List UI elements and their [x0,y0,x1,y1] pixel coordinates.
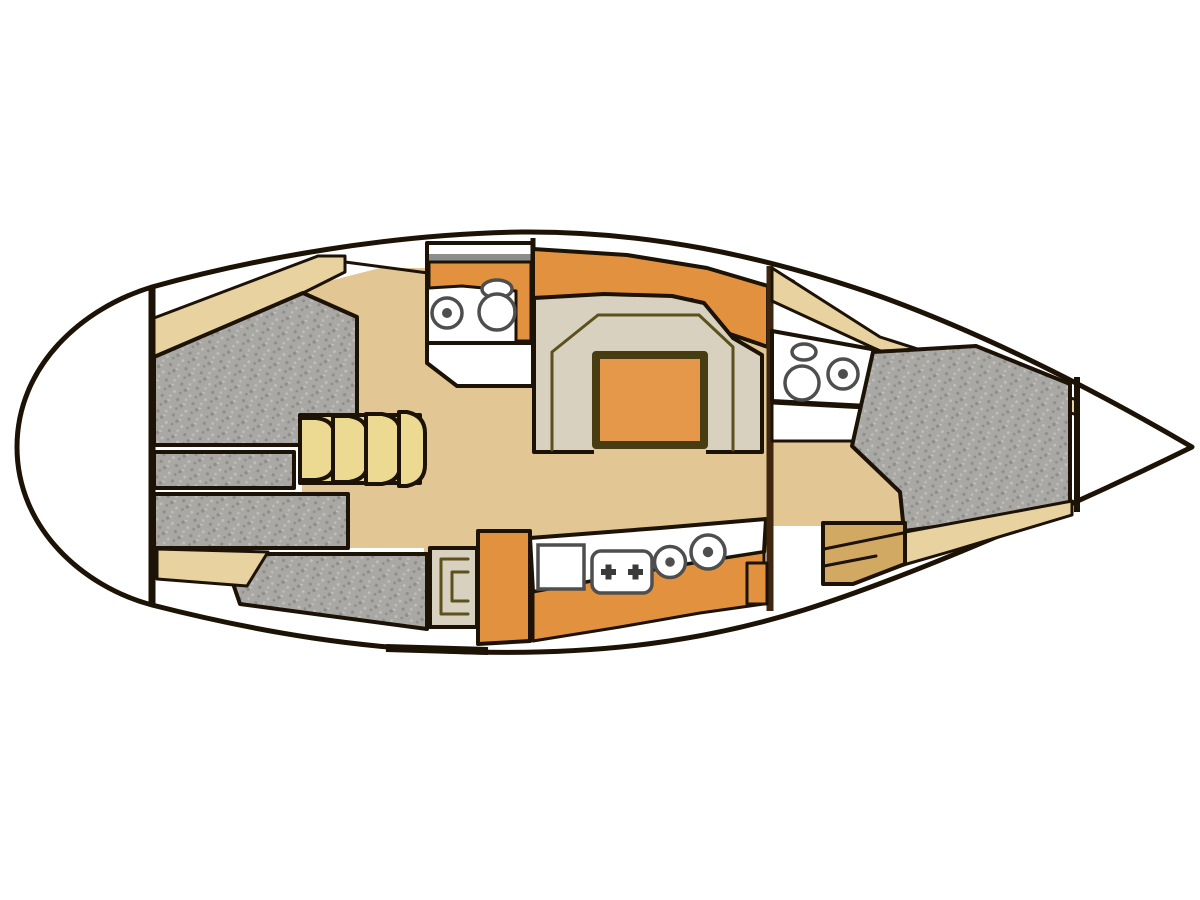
aft-head [427,238,533,386]
aft-head-sink-drain [442,308,452,318]
step-2 [333,416,367,482]
dinette-table [596,355,704,445]
forward-head-toilet-icon [785,366,819,400]
step-3 [366,414,400,484]
forward-head-toilet-tank [792,344,816,360]
keel-bottom-line [386,648,488,651]
galley-burner-large-center [703,547,713,557]
galley-sink-icon [538,545,584,589]
aft-berth-cushion-strip [154,452,294,488]
sailboat-layout-diagram [0,0,1200,900]
galley-cabinet [478,531,530,644]
forward-head-shower [772,403,866,441]
galley-end-cabinet [747,563,767,604]
galley-burner-small-center [665,557,675,567]
aft-head-toilet-icon [479,294,515,330]
chart-table-area [430,548,477,627]
aft-cabin-floor-wedge [157,549,268,586]
forward-head-sink-drain [838,369,848,379]
aft-berth-cushion-mid [154,494,348,548]
step-4 [399,412,425,486]
step-1 [300,418,334,480]
boat-layout-page [0,0,1200,900]
companionway-steps [300,412,425,486]
